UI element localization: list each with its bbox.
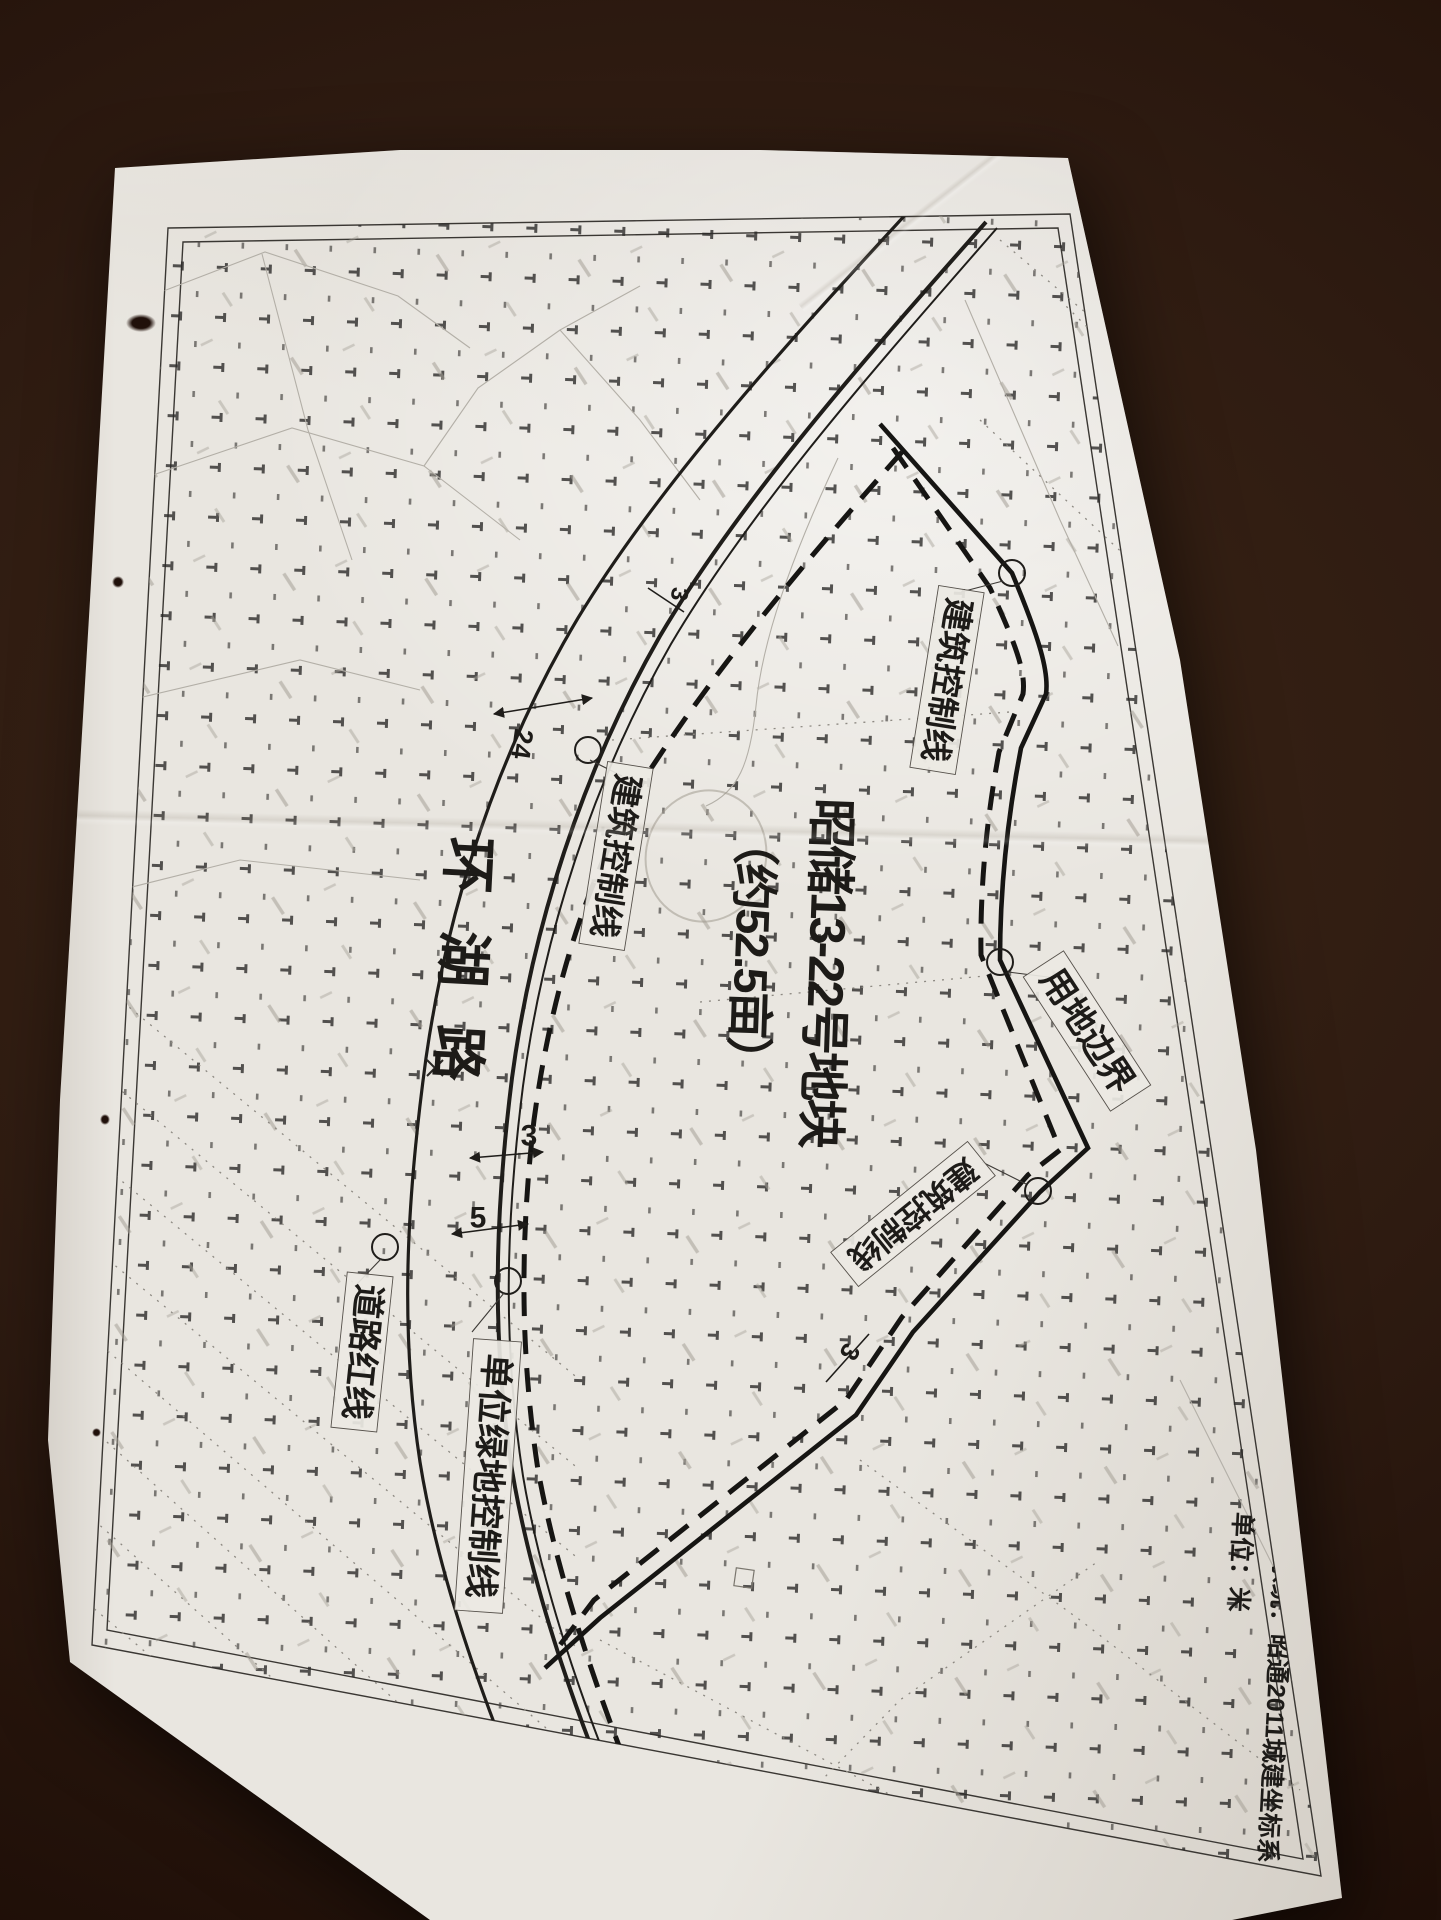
map-drawing: 24 3 3 5 3: [0, 0, 1441, 1920]
paper-tear-spot-3: [100, 1114, 110, 1125]
paper-tear-spot-2: [112, 576, 124, 588]
survey-annotation-texture: [90, 210, 1330, 1890]
dimension-green-belt-value: 24: [505, 727, 539, 761]
paper-tear-spot-1: [126, 314, 156, 332]
plot-area-subtitle: （约52.5亩）: [721, 817, 783, 1082]
paper-sheet: 24 3 3 5 3: [0, 0, 1441, 1920]
dimension-setback-mid-value: 3: [521, 1120, 538, 1153]
photo-background: 24 3 3 5 3: [0, 0, 1441, 1920]
unit-note: 单位：米: [1223, 1511, 1257, 1613]
dimension-setback-green-value: 5: [470, 1202, 487, 1235]
paper-tear-spot-4: [92, 1428, 101, 1437]
